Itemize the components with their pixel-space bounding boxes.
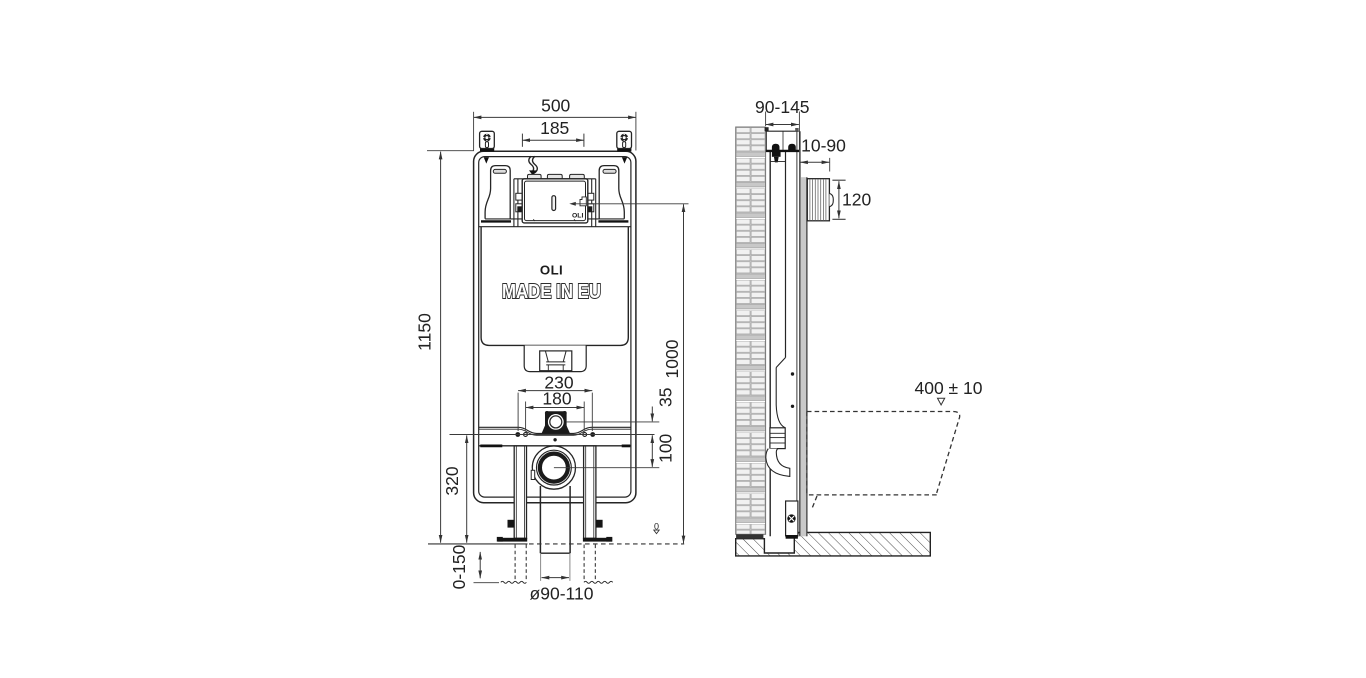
svg-text:0-150: 0-150 <box>449 544 469 589</box>
svg-text:10-90: 10-90 <box>801 135 846 155</box>
svg-text:1000: 1000 <box>662 339 682 378</box>
svg-text:320: 320 <box>442 466 462 495</box>
svg-text:100: 100 <box>656 433 676 462</box>
svg-text:120: 120 <box>842 190 871 210</box>
svg-text:185: 185 <box>540 118 569 138</box>
svg-text:500: 500 <box>541 96 570 116</box>
svg-text:90-145: 90-145 <box>755 97 810 117</box>
svg-text:MADE IN EU: MADE IN EU <box>502 279 601 302</box>
svg-text:1150: 1150 <box>415 313 435 351</box>
svg-text:OLI: OLI <box>540 262 563 277</box>
svg-text:400 ± 10: 400 ± 10 <box>915 378 983 398</box>
svg-text:35: 35 <box>656 387 676 406</box>
svg-text:180: 180 <box>542 388 571 408</box>
svg-text:ø90-110: ø90-110 <box>530 584 594 604</box>
svg-text:OLI: OLI <box>572 213 583 220</box>
